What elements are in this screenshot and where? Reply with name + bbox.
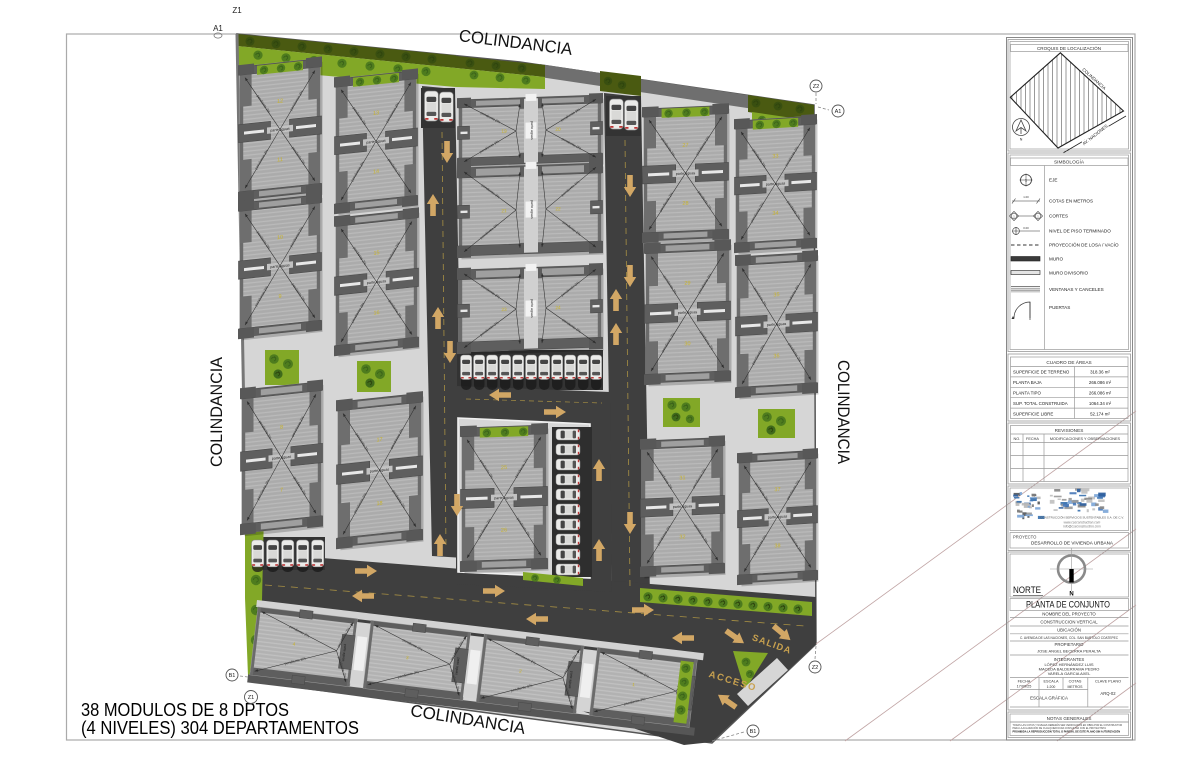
svg-text:NOTAS GENERALES: NOTAS GENERALES — [1047, 716, 1092, 721]
svg-text:PROPIETARIO: PROPIETARIO — [1054, 642, 1084, 647]
svg-text:VENTANAS Y CANCELES: VENTANAS Y CANCELES — [1049, 287, 1104, 292]
svg-text:EJE: EJE — [1049, 178, 1057, 183]
svg-text:MODIFICACIONES Y OBSERVACIONES: MODIFICACIONES Y OBSERVACIONES — [1050, 437, 1121, 441]
svg-text:1.00: 1.00 — [1023, 195, 1029, 199]
svg-text:N: N — [1020, 138, 1023, 142]
svg-text:16: 16 — [373, 310, 379, 317]
svg-text:parte aguas: parte aguas — [530, 121, 534, 140]
svg-text:0.00: 0.00 — [1023, 226, 1029, 230]
svg-text:30: 30 — [684, 341, 690, 347]
svg-text:26: 26 — [501, 528, 507, 534]
svg-text:Z1: Z1 — [232, 6, 242, 15]
svg-text:PLANTA BAJA: PLANTA BAJA — [1013, 380, 1042, 385]
svg-text:35: 35 — [773, 292, 779, 298]
svg-text:DESARROLLO DE VIVIENDA URBANA: DESARROLLO DE VIVIENDA URBANA — [1031, 541, 1114, 546]
svg-text:COLINDANCIA: COLINDANCIA — [834, 360, 853, 465]
svg-text:Z2: Z2 — [813, 84, 820, 90]
svg-text:15: 15 — [373, 250, 379, 257]
svg-text:266.086 m²: 266.086 m² — [1089, 380, 1112, 385]
svg-text:10: 10 — [277, 235, 283, 242]
svg-text:PROHIBIDA LA REPRODUCCIÓN TOTA: PROHIBIDA LA REPRODUCCIÓN TOTAL O PARCIA… — [1013, 730, 1121, 733]
svg-text:COTAS: COTAS — [1069, 680, 1082, 684]
svg-text:Z2: Z2 — [812, 665, 819, 671]
svg-text:38: 38 — [774, 543, 780, 549]
svg-text:C. AVENIDA DE LAS NACIONES, CO: C. AVENIDA DE LAS NACIONES, COL. SAN BAR… — [1020, 636, 1119, 640]
svg-text:CLAVE PLANO: CLAVE PLANO — [1095, 680, 1121, 684]
svg-text:34: 34 — [772, 211, 778, 217]
svg-text:SUP. TOTAL CONSTRUIDA: SUP. TOTAL CONSTRUIDA — [1013, 401, 1068, 406]
svg-text:31: 31 — [679, 475, 685, 481]
svg-text:PLANTA DE CONJUNTO: PLANTA DE CONJUNTO — [1026, 600, 1110, 610]
svg-text:FECHA: FECHA — [1018, 680, 1031, 684]
svg-text:20: 20 — [555, 127, 561, 133]
svg-text:VARELA GARCIA AXEL: VARELA GARCIA AXEL — [1048, 671, 1091, 676]
svg-text:B1: B1 — [750, 729, 757, 735]
svg-text:NORTE: NORTE — [1013, 585, 1041, 595]
svg-text:23: 23 — [501, 307, 507, 313]
svg-text:(4 NIVELES) 304 DEPARTAMENTOS: (4 NIVELES) 304 DEPARTAMENTOS — [81, 717, 359, 738]
svg-text:COLINDANCIA: COLINDANCIA — [207, 356, 226, 467]
svg-text:Z1: Z1 — [248, 695, 255, 701]
svg-text:COTAS EN METROS: COTAS EN METROS — [1049, 199, 1093, 204]
svg-text:CROQUIS DE LOCALIZACIÓN: CROQUIS DE LOCALIZACIÓN — [1037, 45, 1101, 51]
svg-text:MURO: MURO — [1049, 257, 1063, 262]
svg-text:N: N — [1069, 592, 1073, 598]
svg-text:37: 37 — [774, 487, 780, 493]
svg-text:parte aguas: parte aguas — [673, 504, 693, 509]
svg-text:25: 25 — [501, 465, 507, 471]
svg-text:NIVEL DE PISO TERMINADO: NIVEL DE PISO TERMINADO — [1049, 229, 1111, 234]
svg-text:14: 14 — [373, 169, 379, 176]
svg-text:info@cseconstruction.com: info@cseconstruction.com — [1063, 525, 1101, 529]
svg-text:CONSTRUCCION VERTICAL: CONSTRUCCION VERTICAL — [1040, 619, 1098, 624]
svg-text:ESCALA GRÁFICA: ESCALA GRÁFICA — [1030, 696, 1068, 701]
svg-text:CUADRO DE ÁREAS: CUADRO DE ÁREAS — [1046, 359, 1091, 365]
svg-text:MURO DIVISORIO: MURO DIVISORIO — [1049, 271, 1088, 276]
svg-text:318.36 m²: 318.36 m² — [1090, 370, 1110, 375]
svg-text:29: 29 — [684, 280, 690, 286]
svg-text:18: 18 — [376, 501, 382, 508]
svg-text:METROS: METROS — [1068, 685, 1084, 689]
svg-text:19: 19 — [501, 129, 507, 135]
svg-text:33: 33 — [772, 153, 778, 159]
svg-text:266.086 m²: 266.086 m² — [1089, 391, 1112, 396]
svg-text:B1: B1 — [229, 673, 236, 679]
svg-text:UBICACIÓN: UBICACIÓN — [1057, 628, 1081, 633]
svg-text:1:200: 1:200 — [1047, 685, 1056, 689]
svg-text:parte aguas: parte aguas — [530, 200, 534, 219]
svg-text:CONSTRUCCIÓN SERVICIOS SUSTENT: CONSTRUCCIÓN SERVICIOS SUSTENTABLES S.A.… — [1040, 515, 1124, 520]
svg-text:22: 22 — [555, 206, 561, 212]
svg-text:A1: A1 — [213, 24, 223, 33]
svg-text:SUPERFICIE LIBRE: SUPERFICIE LIBRE — [1013, 411, 1053, 416]
svg-text:8: 8 — [280, 425, 283, 431]
svg-text:parte aguas: parte aguas — [676, 171, 696, 176]
svg-text:parte aguas: parte aguas — [494, 496, 514, 501]
svg-text:7: 7 — [280, 487, 283, 493]
svg-text:REVISIONES: REVISIONES — [1055, 428, 1084, 433]
svg-text:NO.: NO. — [1014, 437, 1021, 441]
svg-text:SIMBOLOGÍA: SIMBOLOGÍA — [1054, 159, 1085, 166]
svg-text:17/09/25: 17/09/25 — [1017, 684, 1032, 688]
svg-text:PROYECTO: PROYECTO — [1013, 535, 1037, 540]
svg-text:17: 17 — [376, 437, 382, 444]
svg-text:27: 27 — [682, 143, 688, 149]
svg-text:A1: A1 — [835, 109, 842, 115]
svg-text:JOSE ANGEL BECERRA PERALTA: JOSE ANGEL BECERRA PERALTA — [1037, 648, 1101, 653]
svg-text:28: 28 — [682, 201, 688, 207]
svg-text:PROYECCIÓN DE LOSA / VACÍO: PROYECCIÓN DE LOSA / VACÍO — [1049, 242, 1119, 248]
svg-text:NOMBRE DEL PROYECTO: NOMBRE DEL PROYECTO — [1042, 611, 1096, 616]
svg-text:1064.34 m²: 1064.34 m² — [1089, 401, 1112, 406]
svg-text:21: 21 — [501, 208, 507, 214]
svg-text:36: 36 — [773, 353, 779, 359]
svg-text:parte aguas: parte aguas — [530, 299, 534, 318]
svg-text:24: 24 — [555, 305, 561, 311]
svg-text:11: 11 — [277, 157, 283, 164]
svg-text:PUERTAS: PUERTAS — [1049, 305, 1070, 310]
svg-text:parte aguas: parte aguas — [678, 310, 698, 315]
svg-text:ARQ-02: ARQ-02 — [1100, 691, 1116, 696]
svg-text:PLANTA TIPO: PLANTA TIPO — [1013, 391, 1041, 396]
svg-text:SUPERFICIE DE TERRENO: SUPERFICIE DE TERRENO — [1013, 370, 1070, 375]
svg-text:9: 9 — [278, 294, 281, 300]
svg-text:13: 13 — [373, 110, 379, 117]
svg-text:52.174 m²: 52.174 m² — [1090, 411, 1110, 416]
svg-text:12: 12 — [277, 98, 283, 105]
svg-text:CORTES: CORTES — [1049, 214, 1068, 219]
svg-text:ESCALA: ESCALA — [1044, 680, 1059, 684]
svg-text:32: 32 — [679, 534, 685, 540]
svg-text:FECHA: FECHA — [1026, 437, 1039, 441]
